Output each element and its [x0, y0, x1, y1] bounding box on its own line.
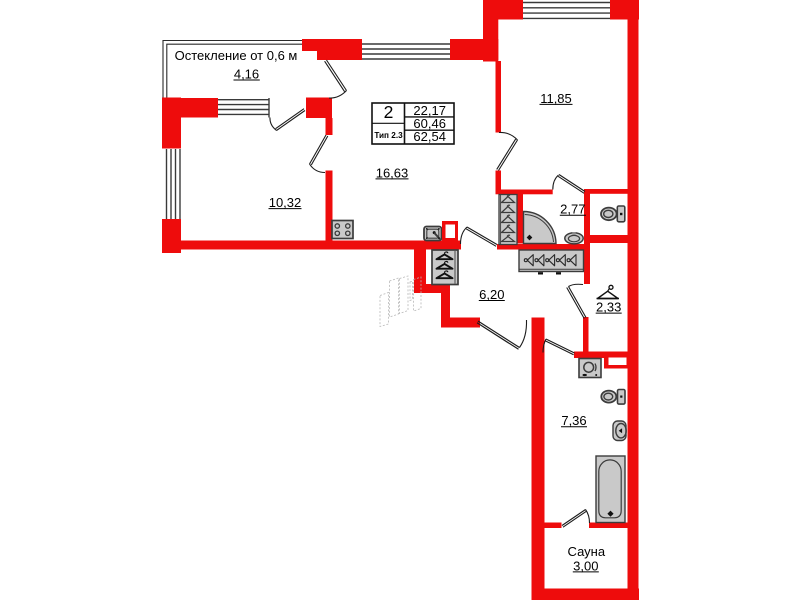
- svg-text:16,63: 16,63: [376, 165, 409, 180]
- svg-text:4,16: 4,16: [234, 67, 259, 82]
- svg-text:7,36: 7,36: [561, 413, 586, 428]
- svg-text:Остекление от 0,6 м: Остекление от 0,6 м: [175, 48, 298, 63]
- svg-text:10,32: 10,32: [269, 195, 302, 210]
- svg-text:2,77: 2,77: [560, 202, 585, 217]
- svg-text:11,85: 11,85: [540, 91, 572, 106]
- svg-text:Тип 2.3: Тип 2.3: [374, 131, 403, 140]
- svg-text:2: 2: [384, 102, 394, 122]
- svg-text:6,20: 6,20: [479, 287, 504, 302]
- svg-text:3,00: 3,00: [573, 558, 598, 573]
- svg-text:2,33: 2,33: [596, 300, 621, 315]
- svg-text:Сауна: Сауна: [568, 544, 606, 559]
- svg-text:62,54: 62,54: [413, 129, 446, 144]
